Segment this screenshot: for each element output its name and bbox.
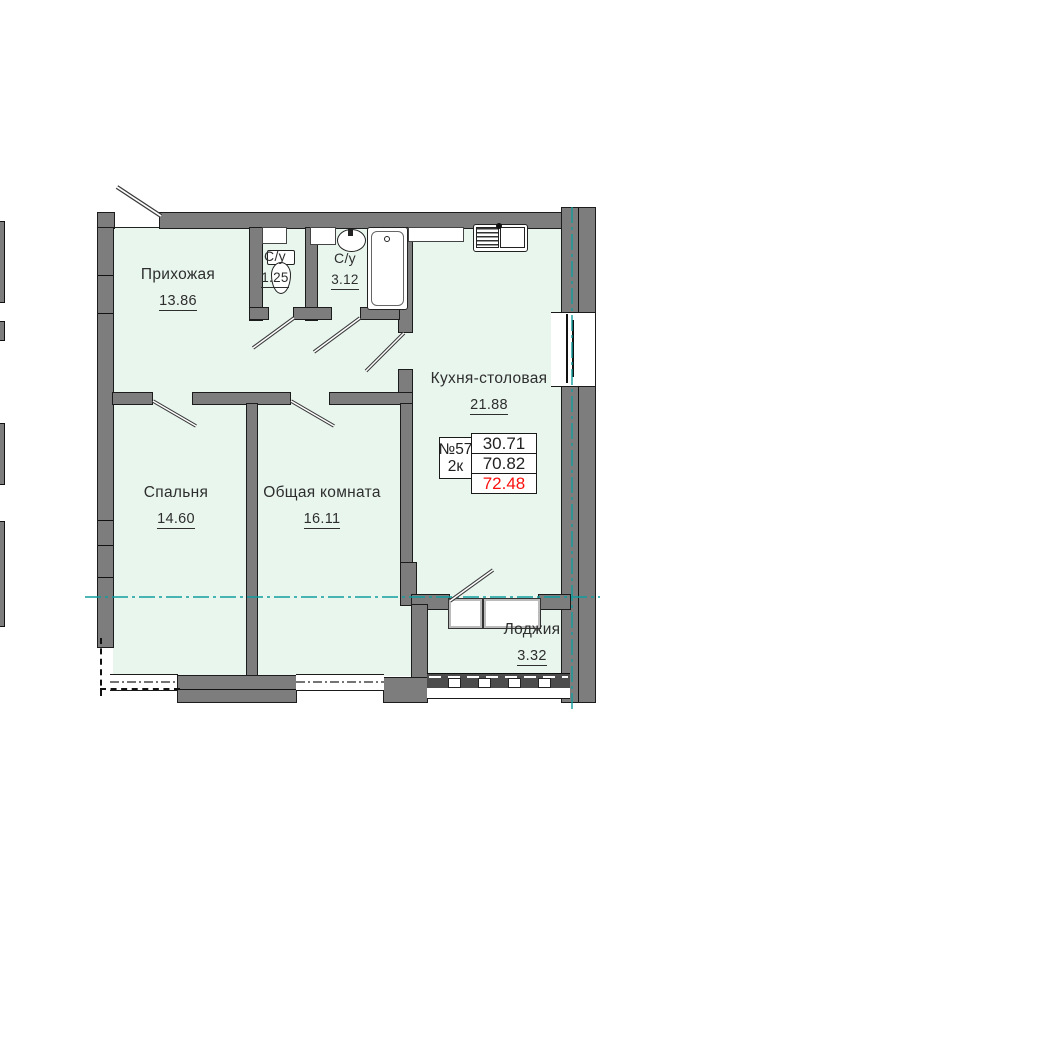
bathtub-inner [371, 231, 404, 306]
sink-faucet [496, 223, 502, 229]
edge-fragment [0, 322, 4, 340]
room-label-wc-small: С/у 1.25 [252, 248, 298, 288]
wall-hall-rooms [330, 393, 412, 404]
unit-area-main: 70.82 [471, 453, 537, 474]
room-area: 14.60 [157, 511, 195, 530]
wall-top-left-corner [98, 213, 114, 228]
wall-loggia-foot [384, 678, 427, 702]
window-living [296, 674, 384, 691]
wall-hall-rooms [193, 393, 290, 404]
loggia-glazing-sill [427, 688, 570, 699]
unit-area-total: 72.48 [471, 473, 537, 494]
floor-plan-canvas: Прихожая 13.86 С/у 1.25 С/у 3.12 Кухня-с… [0, 0, 1041, 1041]
loggia-window-tick [538, 678, 551, 688]
bathtub-icon [367, 227, 408, 310]
wall-bedroom-living [247, 404, 257, 676]
room-label-wc-big: С/у 3.12 [322, 250, 368, 290]
room-label-kitchen: Кухня-столовая 21.88 [414, 370, 564, 415]
room-label-hallway: Прихожая 13.86 [98, 266, 258, 311]
room-label-loggia: Лоджия 3.32 [472, 621, 592, 666]
unit-type: 2к [448, 458, 463, 475]
bath2-shelf [310, 227, 336, 245]
room-area: 16.11 [304, 511, 341, 530]
wall-bottom-pier-joint [178, 689, 296, 690]
edge-fragment [0, 222, 4, 302]
room-area: 21.88 [470, 397, 508, 416]
dashed-outline-horizontal [100, 688, 180, 690]
room-name: С/у [252, 248, 298, 264]
kitchen-sink-icon [473, 224, 528, 252]
room-area: 13.86 [159, 293, 197, 312]
wall-kitchen-loggia [539, 595, 570, 609]
loggia-window-tick [478, 678, 491, 688]
sink-drainer [476, 227, 499, 248]
window-right-frame [566, 314, 568, 383]
wall-left-joint [98, 313, 113, 314]
loggia-window-tick [448, 678, 461, 688]
room-area: 3.32 [517, 648, 546, 667]
room-name: Прихожая [98, 266, 258, 284]
sink-basin [500, 227, 525, 248]
entrance-opening [115, 214, 159, 228]
wall-bath-bottom [294, 308, 331, 319]
room-name: Кухня-столовая [414, 370, 564, 388]
room-name: Спальня [96, 484, 256, 502]
room-label-bedroom: Спальня 14.60 [96, 484, 256, 529]
edge-fragment [0, 424, 4, 484]
room-name: С/у [322, 250, 368, 266]
kitchen-niche [408, 227, 464, 242]
unit-number-cell: №57 2к [439, 437, 472, 479]
room-label-living: Общая комната 16.11 [252, 484, 392, 529]
room-name: Лоджия [472, 621, 592, 639]
unit-living-area: 30.71 [471, 433, 537, 454]
bath1-shelf [262, 227, 287, 244]
unit-number: №57 [439, 441, 473, 458]
wall-left-joint [98, 545, 113, 546]
wall-left-joint [98, 577, 113, 578]
wall-kitchen-living [401, 404, 412, 564]
entrance-door-leaf [117, 187, 161, 216]
room-area: 1.25 [261, 270, 288, 288]
wall-hall-rooms [113, 393, 152, 404]
edge-fragment [0, 522, 4, 626]
window-right-frame [572, 320, 574, 377]
room-area: 3.12 [331, 272, 358, 290]
bathtub-drain [384, 236, 390, 242]
room-name: Общая комната [252, 484, 392, 502]
washbasin-faucet [348, 229, 353, 236]
loggia-window-tick [508, 678, 521, 688]
